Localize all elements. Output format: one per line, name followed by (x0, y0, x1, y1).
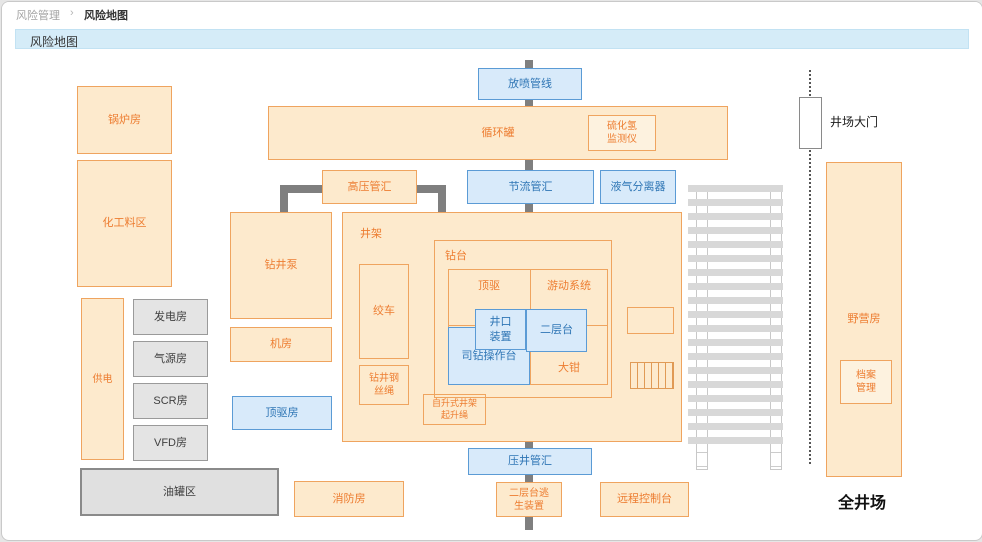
site-gate-label: 井场大门 (830, 113, 878, 130)
node-drilling-pump[interactable]: 钻井泵 (230, 212, 332, 319)
node-monkey-board[interactable]: 二层台 (526, 309, 587, 352)
node-hp-manifold[interactable]: 高压管汇 (322, 170, 417, 204)
node-air-source-room[interactable]: 气源房 (133, 341, 208, 377)
node-escape-device[interactable]: 二层台逃生装置 (496, 482, 562, 517)
node-wellhead-assembly[interactable]: 井口装置 (475, 309, 526, 350)
page-title-bar: 风险地图 (15, 29, 969, 49)
breadcrumb-separator-icon: › (70, 7, 74, 19)
node-fire-room[interactable]: 消防房 (294, 481, 404, 517)
node-top-drive-room[interactable]: 顶驱房 (232, 396, 332, 430)
pipe-hp-left-v (280, 185, 288, 213)
site-gate-box (799, 97, 822, 149)
node-camp-house[interactable]: 野营房 (826, 162, 902, 477)
node-oil-tank-area[interactable]: 油罐区 (80, 468, 279, 516)
breadcrumb-risk-management[interactable]: 风险管理 (16, 7, 60, 23)
node-choke-manifold[interactable]: 节流管汇 (467, 170, 594, 204)
node-blowout-line[interactable]: 放喷管线 (478, 68, 582, 100)
node-vfd-room[interactable]: VFD房 (133, 425, 208, 461)
risk-map-page: 风险管理 › 风险地图 风险地图 井场大门 放喷管线 循环罐 硫化氢监测仪 高压… (1, 1, 982, 541)
node-boiler-room[interactable]: 锅炉房 (77, 86, 172, 154)
node-chemical-area[interactable]: 化工料区 (77, 160, 172, 287)
node-drilling-wire-rope[interactable]: 钻井钢丝绳 (359, 365, 409, 405)
node-kill-manifold[interactable]: 压井管汇 (468, 448, 592, 475)
node-circulation-tank[interactable]: 循环罐 (268, 106, 728, 160)
node-drawworks[interactable]: 绞车 (359, 264, 409, 359)
node-h2s-monitor[interactable]: 硫化氢监测仪 (588, 115, 656, 151)
node-derrick-hoist-rope[interactable]: 自升式井架起升绳 (423, 394, 486, 425)
node-power-supply[interactable]: 供电 (81, 298, 124, 460)
node-scr-room[interactable]: SCR房 (133, 383, 208, 419)
pipe-rack-bars (688, 185, 783, 448)
node-generator-room[interactable]: 发电房 (133, 299, 208, 335)
page-title: 风险地图 (30, 33, 78, 50)
node-archive-mgmt[interactable]: 档案管理 (840, 360, 892, 404)
breadcrumb-risk-map: 风险地图 (84, 7, 128, 23)
site-label: 全井场 (838, 489, 886, 513)
rig-ladder-icon (630, 362, 674, 389)
breadcrumb: 风险管理 › 风险地图 (2, 2, 982, 24)
pipe-hp-right-v (438, 185, 446, 213)
node-machine-room[interactable]: 机房 (230, 327, 332, 362)
rig-small-box (627, 307, 674, 334)
node-gas-liquid-separator[interactable]: 液气分离器 (600, 170, 676, 204)
node-remote-console[interactable]: 远程控制台 (600, 482, 689, 517)
